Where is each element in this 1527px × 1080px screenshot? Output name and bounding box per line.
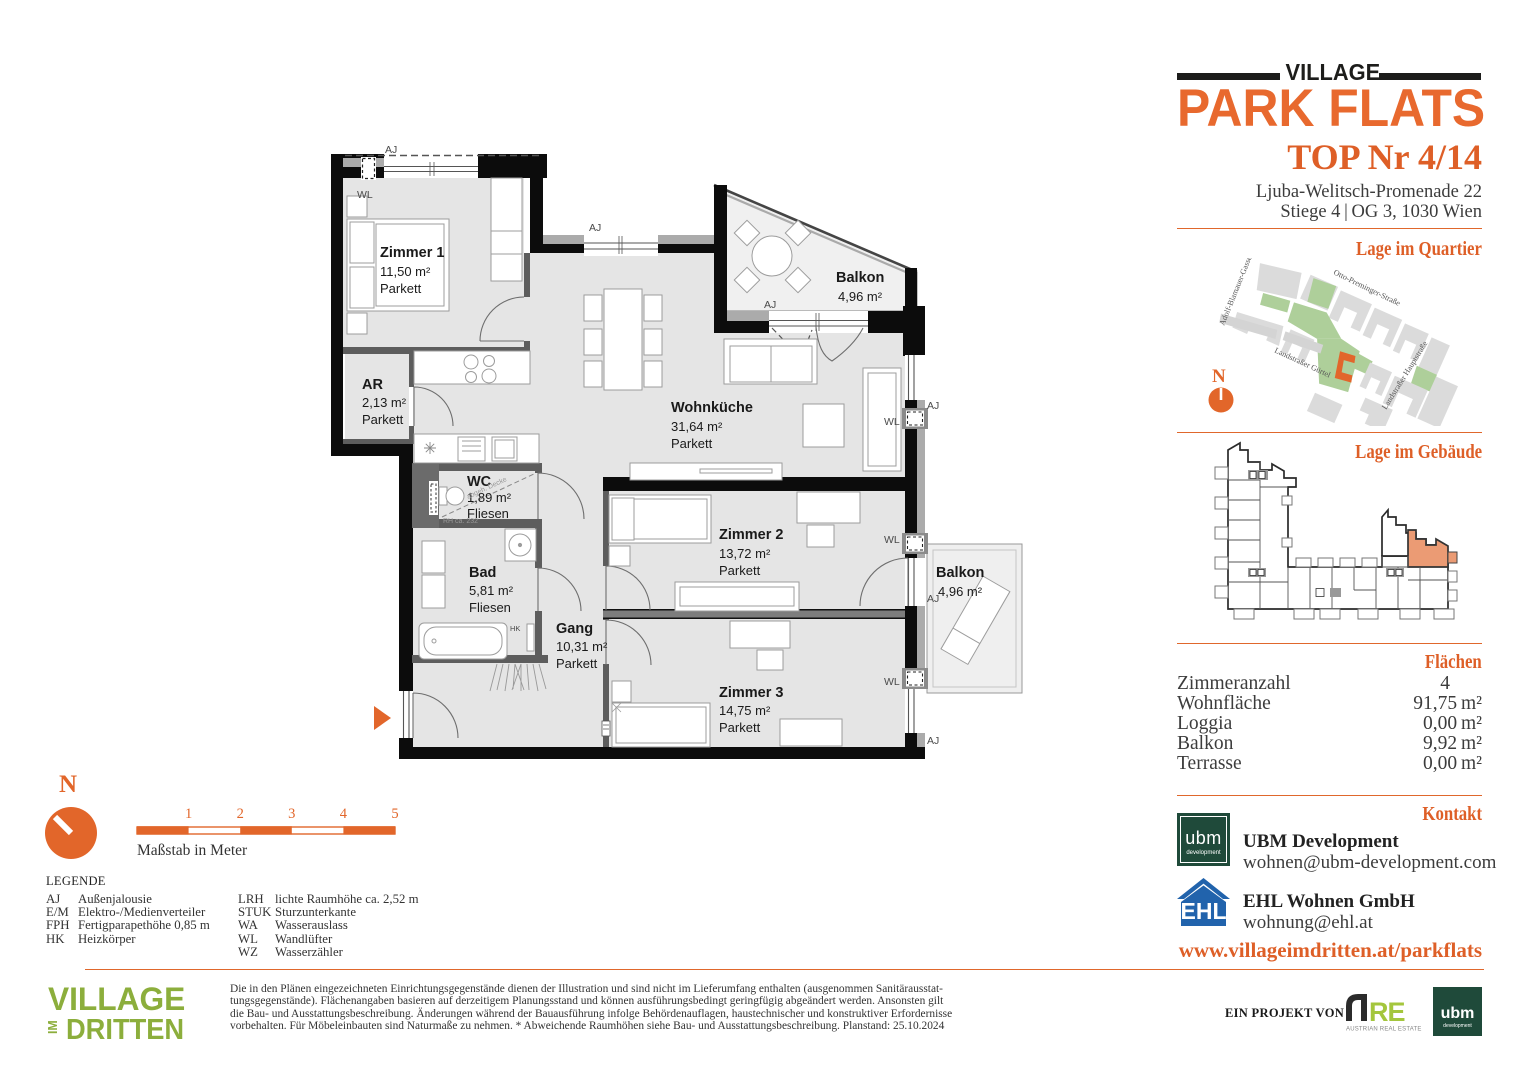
svg-text:Parkett: Parkett: [362, 412, 404, 427]
svg-text:2: 2: [237, 806, 244, 822]
svg-text:Zimmer 2: Zimmer 2: [719, 527, 783, 543]
svg-text:WL: WL: [884, 534, 900, 546]
svg-text:Balkon: Balkon: [836, 270, 884, 286]
svg-text:31,64 m²: 31,64 m²: [671, 419, 723, 434]
svg-text:ubm: ubm: [1441, 1005, 1475, 1022]
svg-text:RH ca. 232: RH ca. 232: [443, 518, 478, 525]
svg-text:2,13 m²: 2,13 m²: [362, 395, 407, 410]
svg-text:5,81 m²: 5,81 m²: [469, 583, 514, 598]
svg-text:Parkett: Parkett: [719, 720, 761, 735]
svg-text:N: N: [1212, 366, 1226, 387]
svg-text:Bad: Bad: [469, 565, 496, 581]
svg-text:Balkon: Balkon: [936, 565, 984, 581]
svg-text:4: 4: [340, 806, 348, 822]
svg-text:Zimmer 3: Zimmer 3: [719, 685, 783, 701]
svg-text:AJ: AJ: [927, 400, 939, 412]
svg-text:RE: RE: [1369, 997, 1405, 1027]
svg-text:3: 3: [288, 806, 295, 822]
svg-text:AJ: AJ: [764, 299, 776, 311]
svg-text:Parkett: Parkett: [671, 436, 713, 451]
svg-text:4,96 m²: 4,96 m²: [938, 584, 983, 599]
svg-text:Parkett: Parkett: [719, 563, 761, 578]
svg-text:WL: WL: [884, 416, 900, 428]
svg-text:AJ: AJ: [589, 222, 601, 234]
svg-text:10,31 m²: 10,31 m²: [556, 639, 608, 654]
svg-text:Parkett: Parkett: [556, 656, 598, 671]
svg-text:11,50 m²: 11,50 m²: [380, 264, 431, 279]
svg-text:Fliesen: Fliesen: [469, 600, 511, 615]
svg-text:WL: WL: [357, 189, 373, 201]
svg-text:AUSTRIAN REAL ESTATE: AUSTRIAN REAL ESTATE: [1346, 1027, 1422, 1033]
svg-text:EHL: EHL: [1181, 898, 1227, 924]
svg-text:1: 1: [185, 806, 192, 822]
svg-text:Wohnküche: Wohnküche: [671, 400, 753, 416]
svg-text:AJ: AJ: [927, 593, 939, 605]
svg-text:AR: AR: [362, 377, 383, 393]
svg-text:AJ: AJ: [385, 144, 397, 156]
svg-text:Zimmer 1: Zimmer 1: [380, 245, 444, 261]
svg-text:Parkett: Parkett: [380, 281, 422, 296]
svg-text:WL: WL: [884, 676, 900, 688]
svg-text:13,72 m²: 13,72 m²: [719, 546, 771, 561]
svg-text:4,96 m²: 4,96 m²: [838, 289, 883, 304]
svg-text:development: development: [1186, 850, 1221, 856]
svg-text:development: development: [1443, 1023, 1472, 1029]
svg-text:ubm: ubm: [1185, 828, 1222, 848]
svg-text:14,75 m²: 14,75 m²: [719, 703, 771, 718]
svg-text:5: 5: [391, 806, 398, 822]
svg-text:HK: HK: [510, 624, 520, 633]
svg-text:Gang: Gang: [556, 621, 593, 637]
svg-text:AJ: AJ: [927, 735, 939, 747]
